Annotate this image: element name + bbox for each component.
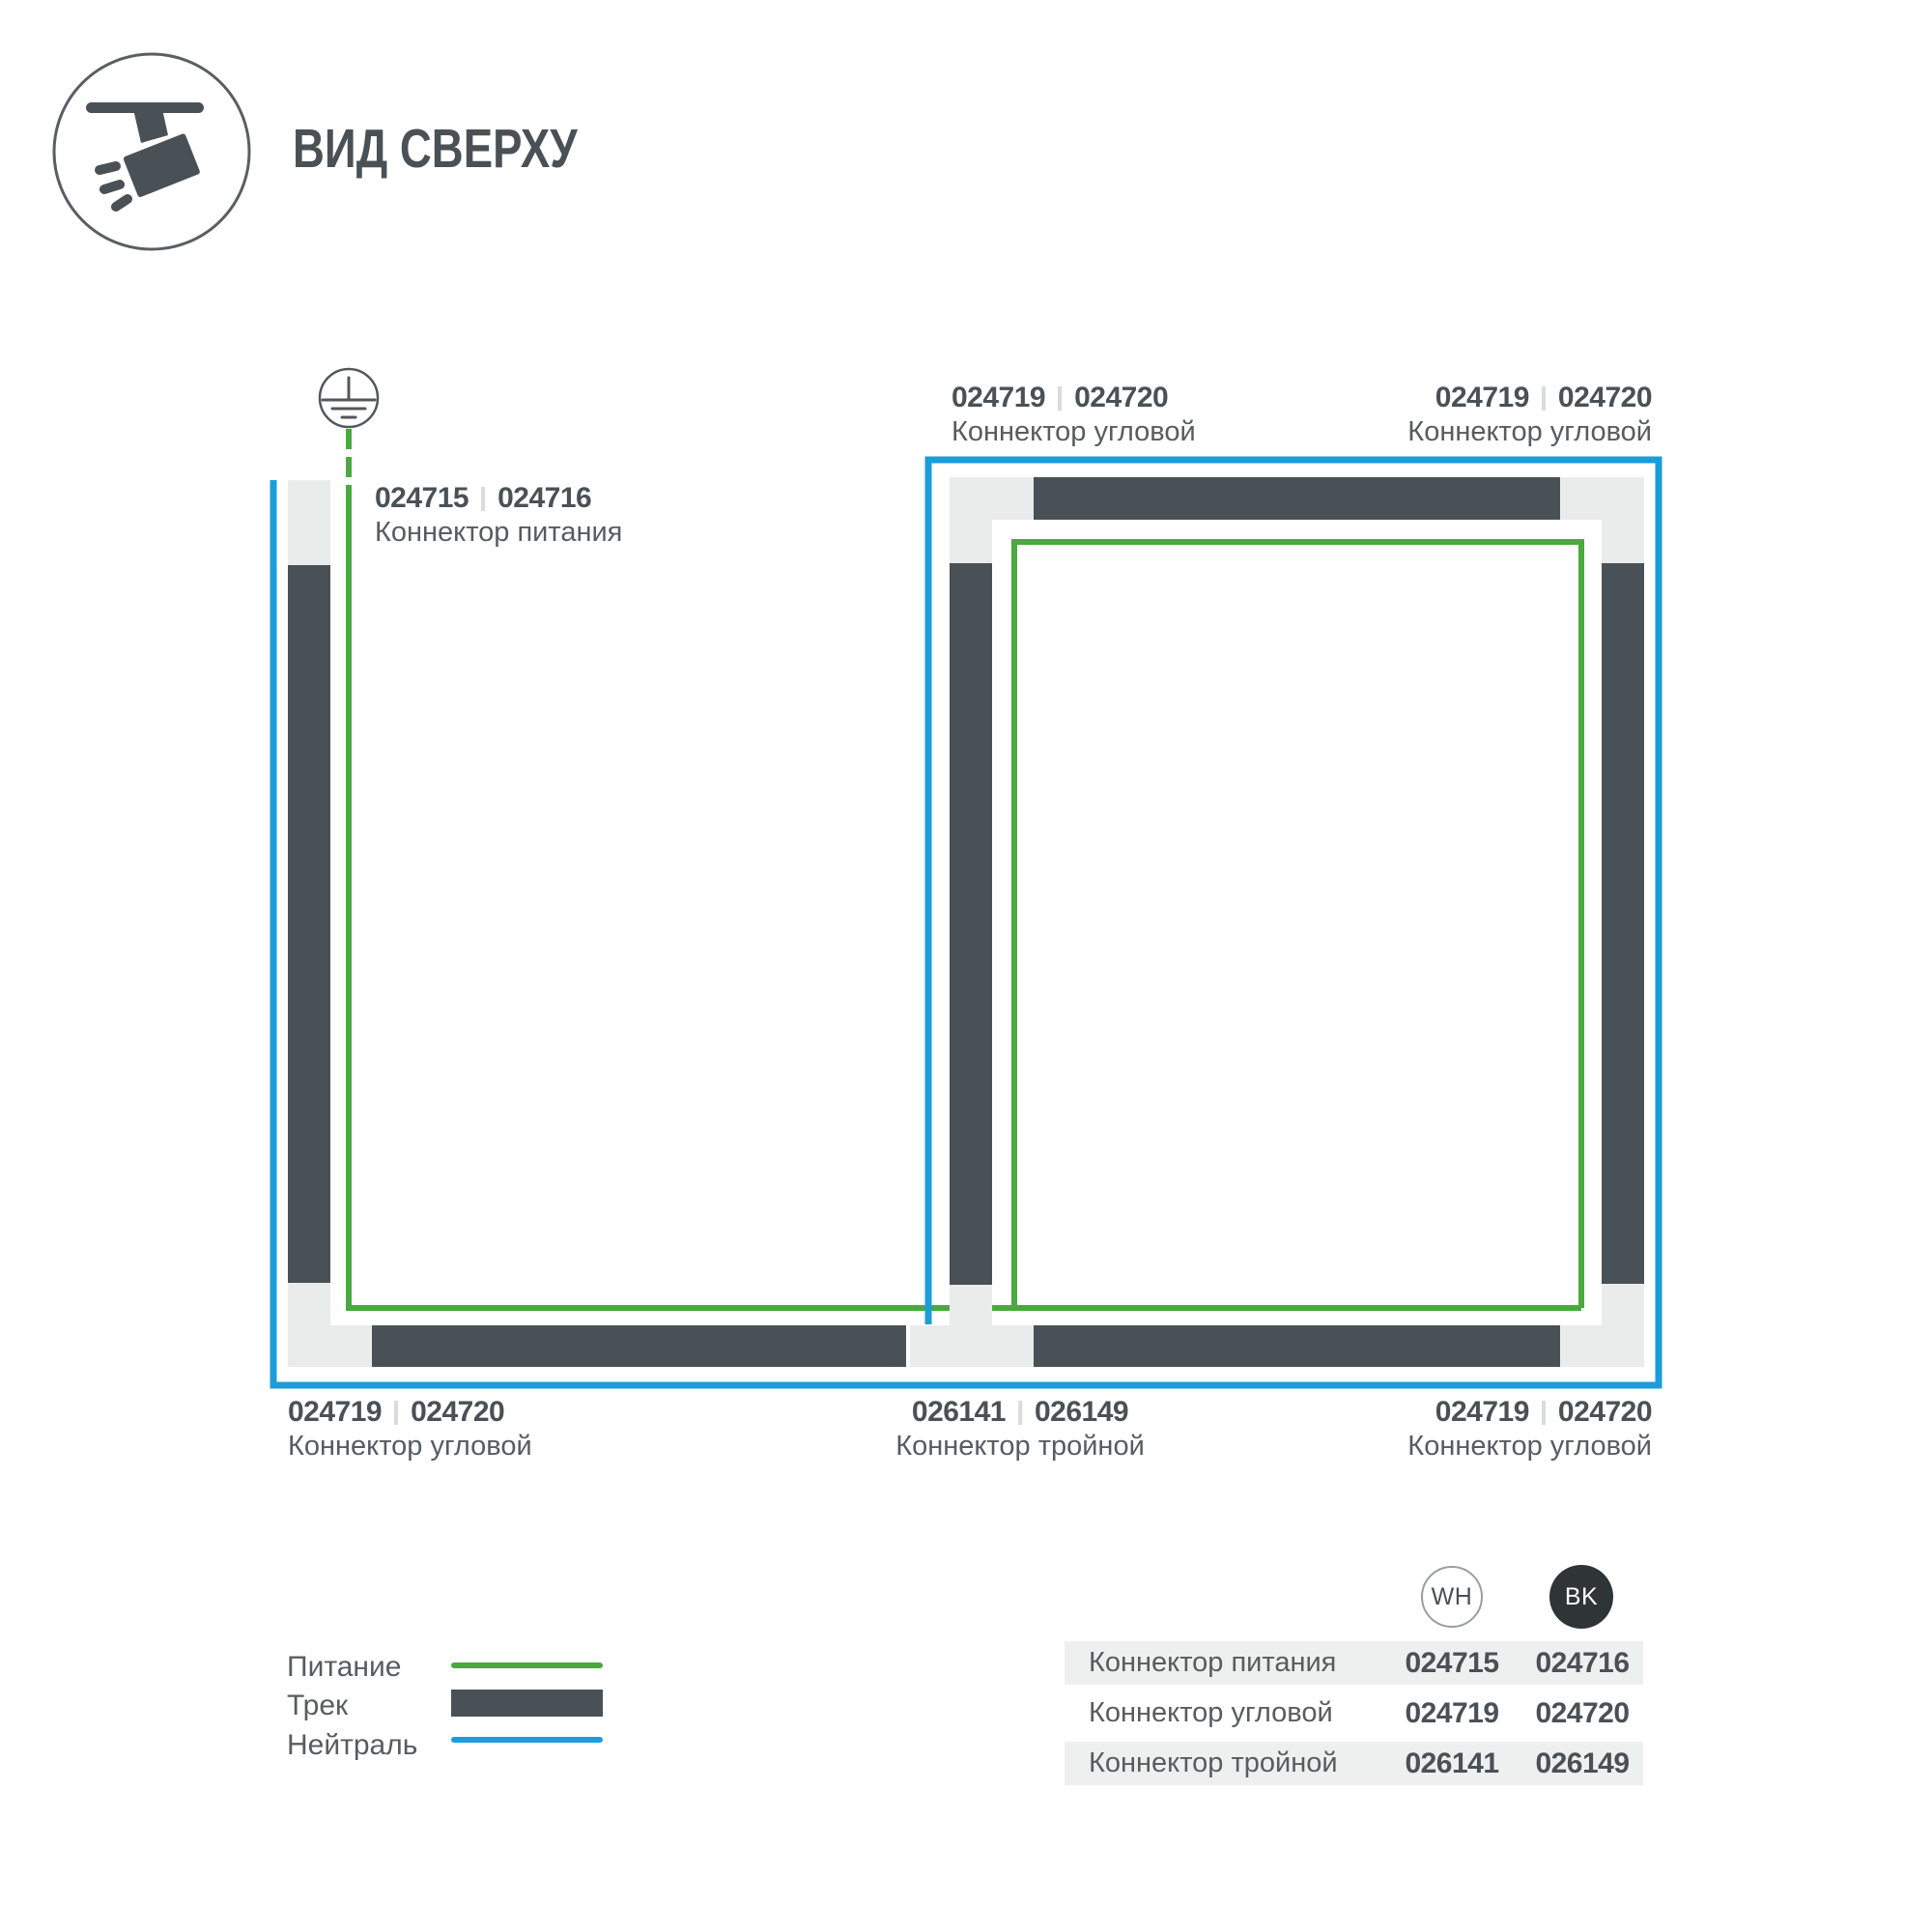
part-number-separator: [1058, 386, 1062, 411]
table-row-wh-code: 024719: [1392, 1697, 1512, 1730]
table-row-wh-code: 024715: [1392, 1647, 1512, 1680]
corner-connector-top-right: [1560, 477, 1644, 563]
label-triple-connector-bottom-middle: 026141026149 Коннектор тройной: [895, 1397, 1145, 1462]
part-number-bk: 024720: [1558, 382, 1652, 413]
label-corner-connector-top-middle: 024719024720 Коннектор угловой: [952, 383, 1196, 447]
label-corner-connector-bottom-left: 024719024720 Коннектор угловой: [288, 1397, 532, 1462]
part-name: Коннектор тройной: [895, 1432, 1145, 1462]
color-badge-white: WH: [1421, 1566, 1483, 1628]
part-name: Коннектор угловой: [1407, 1432, 1652, 1462]
power-connector-piece: [288, 480, 330, 565]
part-number-wh: 024719: [1435, 382, 1529, 413]
page-title: ВИД СВЕРХУ: [293, 122, 578, 177]
legend-swatch-power-line: [451, 1662, 603, 1668]
part-number-wh: 024715: [375, 482, 469, 514]
part-number-wh: 026141: [912, 1396, 1006, 1428]
track-left-vertical: [288, 565, 330, 1283]
part-name: Коннектор питания: [375, 518, 622, 548]
part-name: Коннектор угловой: [1407, 417, 1652, 447]
track-left-bottom: [372, 1325, 906, 1367]
legend-swatch-neutral-line: [451, 1737, 603, 1743]
label-corner-connector-top-right: 024719024720 Коннектор угловой: [1407, 383, 1652, 447]
part-name: Коннектор угловой: [952, 417, 1196, 447]
track-right-vertical: [1602, 563, 1644, 1284]
part-number-wh: 024719: [1435, 1396, 1529, 1428]
part-number-separator: [1018, 1401, 1022, 1425]
part-number-bk: 024720: [411, 1396, 504, 1428]
part-name: Коннектор угловой: [288, 1432, 532, 1462]
table-row-bk-code: 026149: [1522, 1747, 1642, 1780]
part-numbers: 024719024720: [1407, 1397, 1652, 1428]
part-number-separator: [481, 487, 485, 511]
legend-label-track: Трек: [287, 1690, 348, 1721]
part-numbers: 024715024716: [375, 483, 622, 514]
part-numbers: 026141026149: [895, 1397, 1145, 1428]
table-row-bk-code: 024716: [1522, 1647, 1642, 1680]
part-number-separator: [394, 1401, 398, 1425]
part-number-separator: [1542, 1401, 1546, 1425]
part-numbers: 024719024720: [1407, 383, 1652, 413]
part-number-bk: 024716: [497, 482, 591, 514]
top-view-page: ВИД СВЕРХУ 024715024716 Коннектор питани…: [0, 0, 1932, 1932]
track-right-top: [1034, 477, 1560, 520]
corner-connector-bottom-right: [1560, 1284, 1644, 1367]
part-number-bk: 024720: [1558, 1396, 1652, 1428]
table-row: Коннектор питания 024715 024716: [1065, 1641, 1643, 1685]
part-number-bk: 024720: [1074, 382, 1168, 413]
part-number-wh: 024719: [288, 1396, 382, 1428]
label-power-connector: 024715024716 Коннектор питания: [375, 483, 622, 548]
part-number-separator: [1542, 386, 1546, 411]
table-row: Коннектор угловой 024719 024720: [1065, 1685, 1643, 1742]
table-row-wh-code: 026141: [1392, 1747, 1512, 1780]
table-row: Коннектор тройной 026141 026149: [1065, 1742, 1643, 1785]
corner-connector-top-left: [950, 477, 1034, 563]
part-number-bk: 026149: [1035, 1396, 1128, 1428]
table-row-bk-code: 024720: [1522, 1697, 1642, 1730]
track-middle-vertical: [950, 563, 992, 1285]
label-corner-connector-bottom-right: 024719024720 Коннектор угловой: [1407, 1397, 1652, 1462]
track-segments: [288, 477, 1644, 1367]
part-numbers: 024719024720: [952, 383, 1196, 413]
ground-icon: [320, 369, 378, 427]
corner-connector-bottom-left: [288, 1283, 372, 1367]
legend-swatch-track-bar: [451, 1690, 603, 1717]
track-light-icon: [54, 54, 249, 249]
legend-label-power: Питание: [287, 1652, 401, 1683]
legend-label-neutral: Нейтраль: [287, 1730, 417, 1761]
color-badge-black: BK: [1549, 1565, 1613, 1629]
part-numbers: 024719024720: [288, 1397, 532, 1428]
part-number-wh: 024719: [952, 382, 1045, 413]
track-right-bottom: [1034, 1325, 1560, 1367]
